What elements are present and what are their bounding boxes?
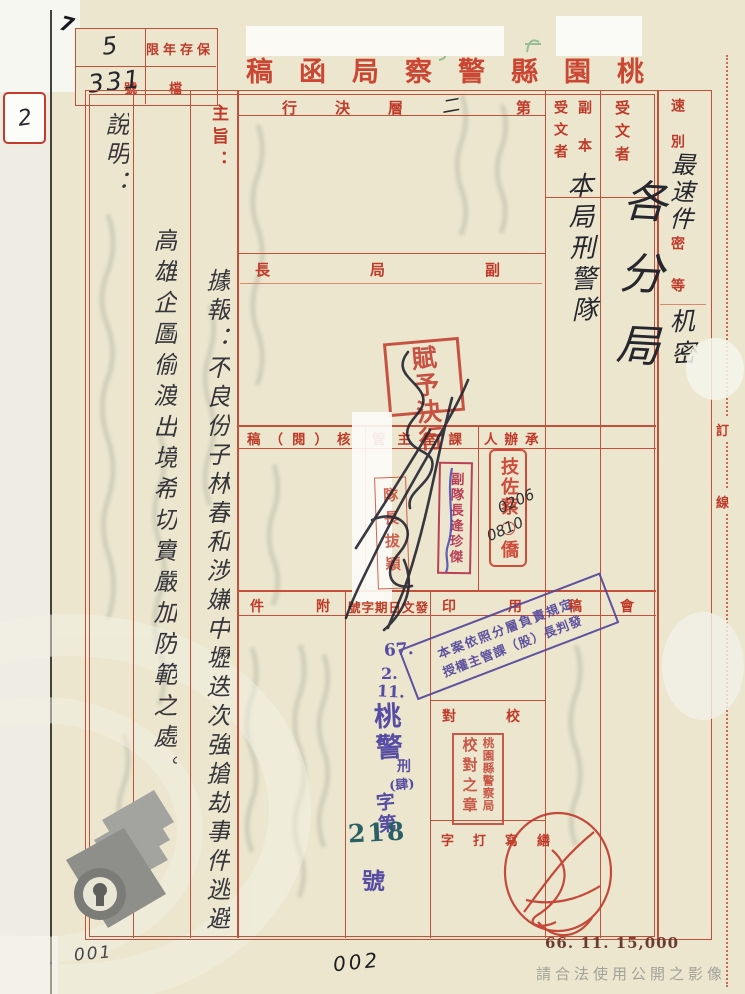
table-line xyxy=(237,448,656,449)
table-line xyxy=(430,700,545,701)
page-number-center: 002 xyxy=(332,948,381,977)
recipient-label: 受文者 xyxy=(612,100,633,169)
white-patch xyxy=(556,16,642,56)
white-patch xyxy=(662,612,744,720)
scanned-police-letter-draft: 桃園縣警察局函稿 保存年限 檔號 5 331 xyxy=(0,0,745,994)
archive-logo xyxy=(58,782,208,937)
binding-label-bottom: 線 xyxy=(716,490,729,513)
typing-label: 繕寫打字 xyxy=(441,830,569,849)
white-patch xyxy=(686,338,744,400)
dispatch-number: 218 xyxy=(347,816,407,848)
table-line xyxy=(600,90,601,938)
dispatch-date-year: 67. xyxy=(383,639,414,661)
dispatch-number-suffix: 號 xyxy=(361,862,385,897)
binding-label-top: 訂 xyxy=(716,418,729,441)
side-tab-value-handwritten: 2 xyxy=(16,105,33,132)
grant-decision-stamp-text: 賦予決行 xyxy=(403,344,444,411)
explanation-label-handwritten: 說明： xyxy=(98,112,133,199)
decision-level-suffix: 層決行 xyxy=(282,97,441,118)
white-patch xyxy=(246,26,504,56)
copy-recipient-label: 受文者 xyxy=(550,100,570,166)
dispatch-date-month: 2. xyxy=(381,664,398,683)
table-line xyxy=(545,90,546,938)
recipient-value-handwritten: 各分局 xyxy=(598,176,673,395)
copy-label: 副本 xyxy=(574,100,594,176)
table-line xyxy=(478,425,479,590)
review-check-label: 核（閱）稿 xyxy=(247,428,360,448)
deputy-chief-label: 副局長 xyxy=(255,259,600,280)
section-chief-stamp-text: 隊長拔穎 xyxy=(380,487,404,580)
retention-period-label: 保存年限 xyxy=(150,39,214,58)
deputy-squad-stamp-text: 副隊長逄珍傑 xyxy=(444,471,466,564)
table-line xyxy=(237,90,239,938)
subject-line2-handwritten: 高雄企圖偷渡出境希切實嚴加防範之處。 xyxy=(146,228,181,786)
decision-level-prefix: 第 xyxy=(516,97,531,118)
proofread-seal-stamp: 桃園縣警察局 校對之章 xyxy=(452,733,504,825)
section-chief-stamp: 隊長拔穎 xyxy=(374,476,410,589)
proofread-stamp-text: 校對之章 xyxy=(460,737,481,821)
deputy-squad-stamp: 副隊長逄珍傑 xyxy=(437,462,473,575)
print-code: 66. 11. 15,000 xyxy=(545,934,679,952)
meeting-label: 會 xyxy=(620,596,634,616)
table-line xyxy=(237,253,545,254)
page-number-left: 001 xyxy=(73,942,113,965)
subject-label: 主旨： xyxy=(206,104,231,173)
grant-decision-stamp: 賦予決行 xyxy=(383,337,465,417)
proofread-label: 校對 xyxy=(442,706,570,726)
date-number-label: 發文日期字號 xyxy=(348,597,429,616)
retention-period-value: 5 xyxy=(101,31,119,60)
copy-value-handwritten: 本局刑警隊 xyxy=(559,171,601,327)
binding-dotted-line xyxy=(726,55,728,987)
table-line xyxy=(237,425,656,427)
table-line xyxy=(345,590,346,938)
table-line xyxy=(240,283,542,284)
usage-watermark: 請合法使用公開之影像 xyxy=(536,963,726,984)
handler-label: 承辦人 xyxy=(484,428,546,448)
dispatch-date-day: 11. xyxy=(377,681,406,701)
side-tab-label: 2 xyxy=(3,92,46,144)
proofread-stamp-org: 桃園縣警察局 xyxy=(481,737,497,821)
